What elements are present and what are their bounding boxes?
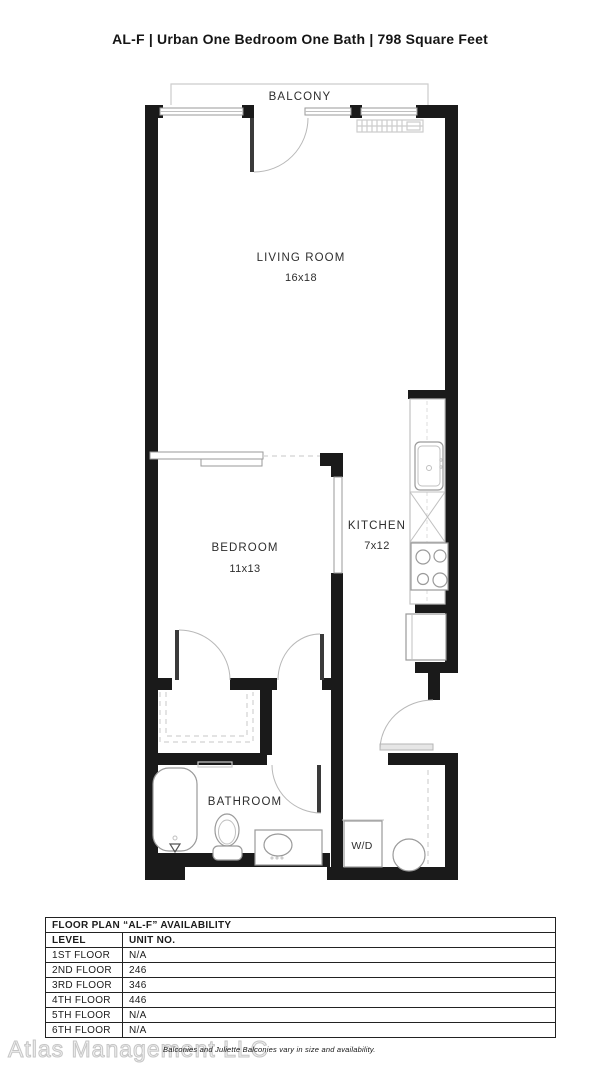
level-cell: 5TH FLOOR xyxy=(46,1008,123,1023)
balcony-door xyxy=(250,118,308,172)
table-title: FLOOR PLAN “AL-F” AVAILABILITY xyxy=(46,918,556,933)
washer-dryer: W/D xyxy=(342,770,428,871)
table-header-row: LEVEL UNIT NO. xyxy=(46,933,556,948)
windows xyxy=(160,108,417,115)
kitchen-label: KITCHEN xyxy=(348,520,406,532)
closet xyxy=(160,692,253,742)
table-row: 3RD FLOOR 346 xyxy=(46,978,556,993)
hvac-grate xyxy=(357,120,423,132)
level-cell: 2ND FLOOR xyxy=(46,963,123,978)
level-cell: 4TH FLOOR xyxy=(46,993,123,1008)
availability-table: FLOOR PLAN “AL-F” AVAILABILITY LEVEL UNI… xyxy=(45,917,556,1038)
bedroom-dims: 11x13 xyxy=(229,563,260,575)
unit-cell: N/A xyxy=(123,1008,556,1023)
water-heater xyxy=(393,839,425,871)
floor-plan-page: AL-F | Urban One Bedroom One Bath | 798 … xyxy=(0,0,600,1080)
col-header-unit: UNIT NO. xyxy=(123,933,556,948)
living-room-label: LIVING ROOM xyxy=(257,252,346,264)
col-header-level: LEVEL xyxy=(46,933,123,948)
unit-cell: N/A xyxy=(123,948,556,963)
stove xyxy=(411,543,448,590)
bedroom-sliding-door xyxy=(150,452,320,466)
living-room-dims: 16x18 xyxy=(285,272,317,284)
table-row: 1ST FLOOR N/A xyxy=(46,948,556,963)
balcony-label: BALCONY xyxy=(269,91,332,103)
entry-door xyxy=(380,700,433,750)
bedroom-pocket-door xyxy=(334,477,342,573)
bathtub xyxy=(153,768,197,852)
refrigerator xyxy=(406,614,446,660)
table-title-row: FLOOR PLAN “AL-F” AVAILABILITY xyxy=(46,918,556,933)
kitchen-dims: 7x12 xyxy=(364,540,389,552)
kitchen-sink xyxy=(415,442,443,490)
unit-cell: 246 xyxy=(123,963,556,978)
washer-dryer-label: W/D xyxy=(351,840,372,852)
vanity-sink xyxy=(255,830,322,865)
toilet xyxy=(213,814,242,860)
level-cell: 3RD FLOOR xyxy=(46,978,123,993)
table-row: 4TH FLOOR 446 xyxy=(46,993,556,1008)
closet-door xyxy=(175,630,230,680)
table-row: 5TH FLOOR N/A xyxy=(46,1008,556,1023)
bathroom-label: BATHROOM xyxy=(208,796,282,808)
bedroom-door xyxy=(278,634,324,680)
table-row: 2ND FLOOR 246 xyxy=(46,963,556,978)
level-cell: 1ST FLOOR xyxy=(46,948,123,963)
bedroom-label: BEDROOM xyxy=(211,542,278,554)
unit-cell: 446 xyxy=(123,993,556,1008)
balcony-disclaimer: Balconies and Juliette Balconies vary in… xyxy=(163,1045,376,1054)
balcony: BALCONY xyxy=(171,84,428,105)
unit-cell: 346 xyxy=(123,978,556,993)
